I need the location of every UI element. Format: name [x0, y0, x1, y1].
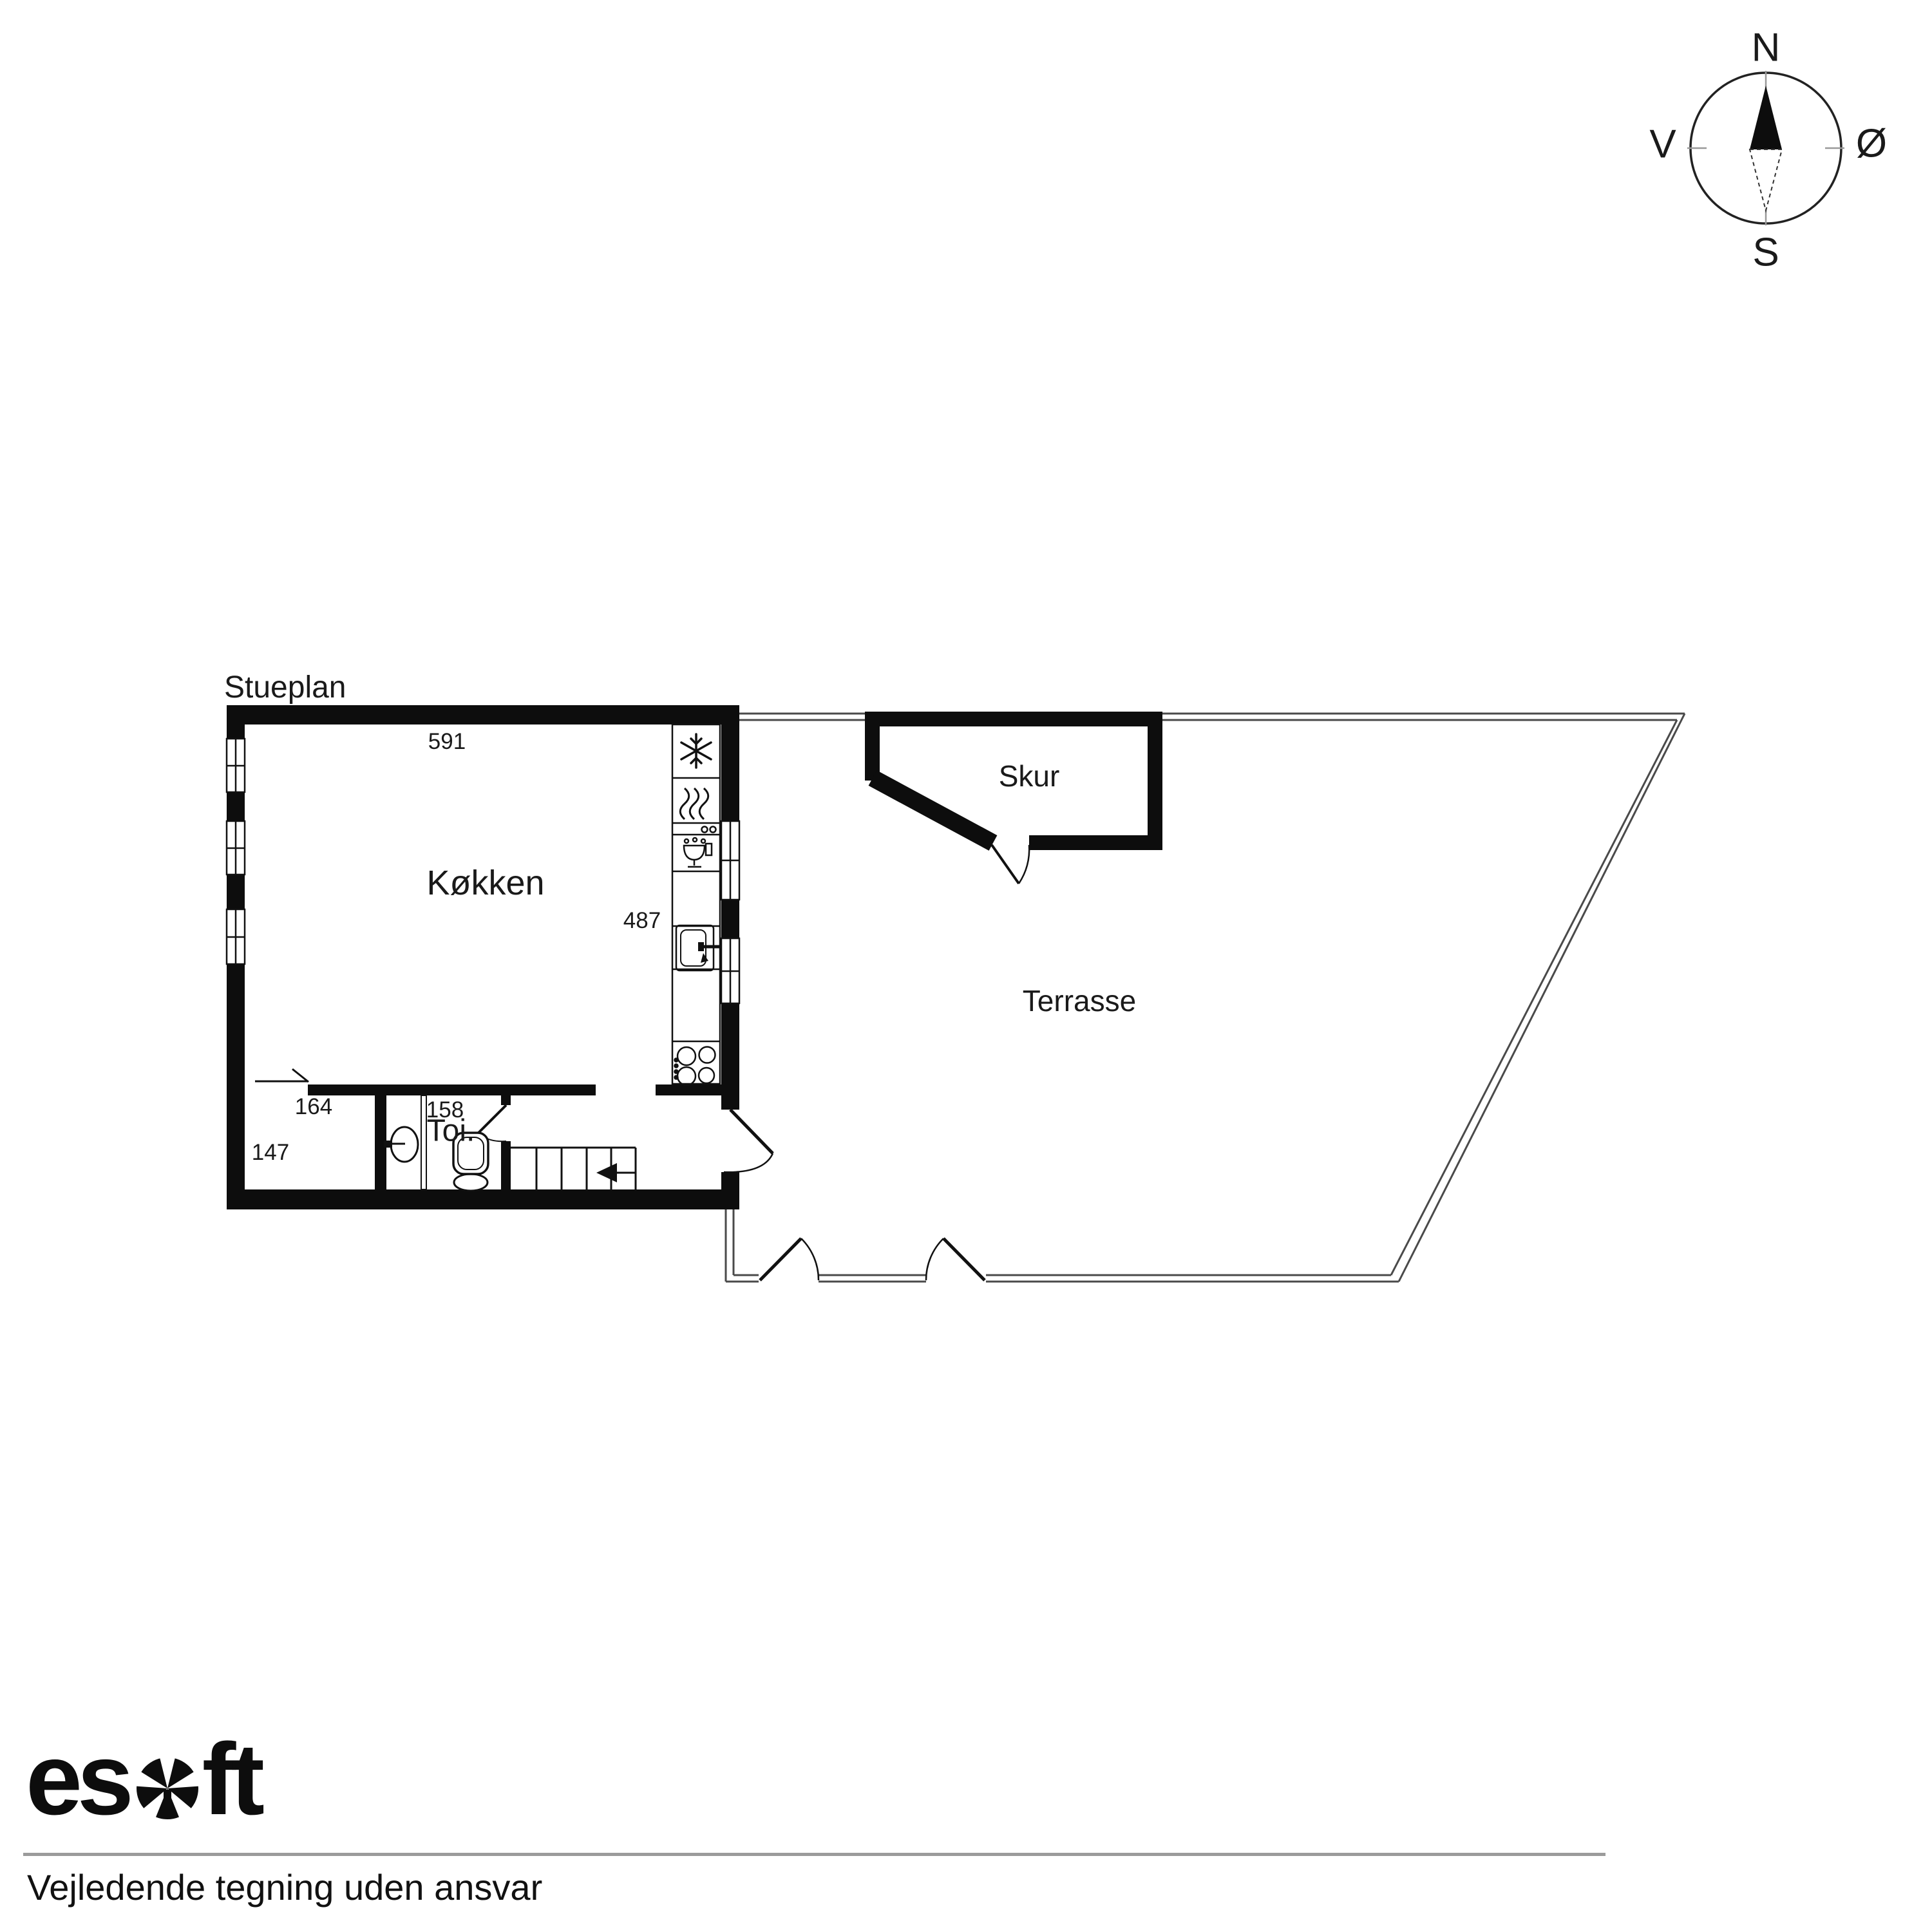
floor-plan-page: Stueplan 591 Køkken 487 164 147 158 Toi.… [0, 0, 1932, 1932]
toilet-room-label: Toi. [427, 1113, 475, 1149]
compass-east-label: Ø [1856, 121, 1887, 167]
shed-room-label: Skur [999, 759, 1060, 793]
compass-needle-north [1750, 86, 1782, 149]
utility-depth-dimension: 147 [252, 1140, 289, 1166]
kitchen-width-dimension: 591 [428, 729, 466, 755]
compass-south-label: S [1752, 230, 1779, 276]
footer-divider-line [23, 1853, 1605, 1856]
entrance-door [724, 1110, 773, 1172]
disclaimer-text: Vejledende tegning uden ansvar [27, 1866, 542, 1908]
compass-rose [1687, 71, 1844, 225]
terrace-gate-right [926, 1238, 985, 1280]
terrace-room-label: Terrasse [1023, 983, 1136, 1018]
utility-width-dimension: 164 [295, 1094, 332, 1120]
page-title: Stueplan [224, 670, 346, 705]
floor-plan-drawing [0, 0, 1932, 1932]
stairs-direction-arrow-icon [596, 1163, 617, 1182]
stairs [511, 1148, 636, 1190]
compass-north-label: N [1752, 25, 1781, 71]
kitchen-depth-dimension: 487 [623, 908, 661, 934]
compass-needle-south [1750, 149, 1782, 211]
kitchen-room-label: Køkken [426, 863, 544, 903]
window-icons-left-wall [227, 739, 245, 964]
esoft-logo-text-es: es [26, 1735, 129, 1824]
interior-walls [308, 1084, 721, 1189]
terrace-gate-left [760, 1238, 819, 1280]
terrace-boundary [726, 714, 1685, 1282]
washbasin-icon [384, 1127, 418, 1162]
sliding-door [255, 1069, 308, 1082]
esoft-logo-text-ft: ft [202, 1735, 260, 1824]
compass-west-label: V [1649, 122, 1676, 167]
esoft-logo: es ft [26, 1735, 260, 1824]
kitchen-counter [672, 724, 720, 1084]
thin-partition [421, 1095, 426, 1189]
esoft-aperture-icon [135, 1756, 200, 1821]
shed-door [992, 845, 1029, 884]
